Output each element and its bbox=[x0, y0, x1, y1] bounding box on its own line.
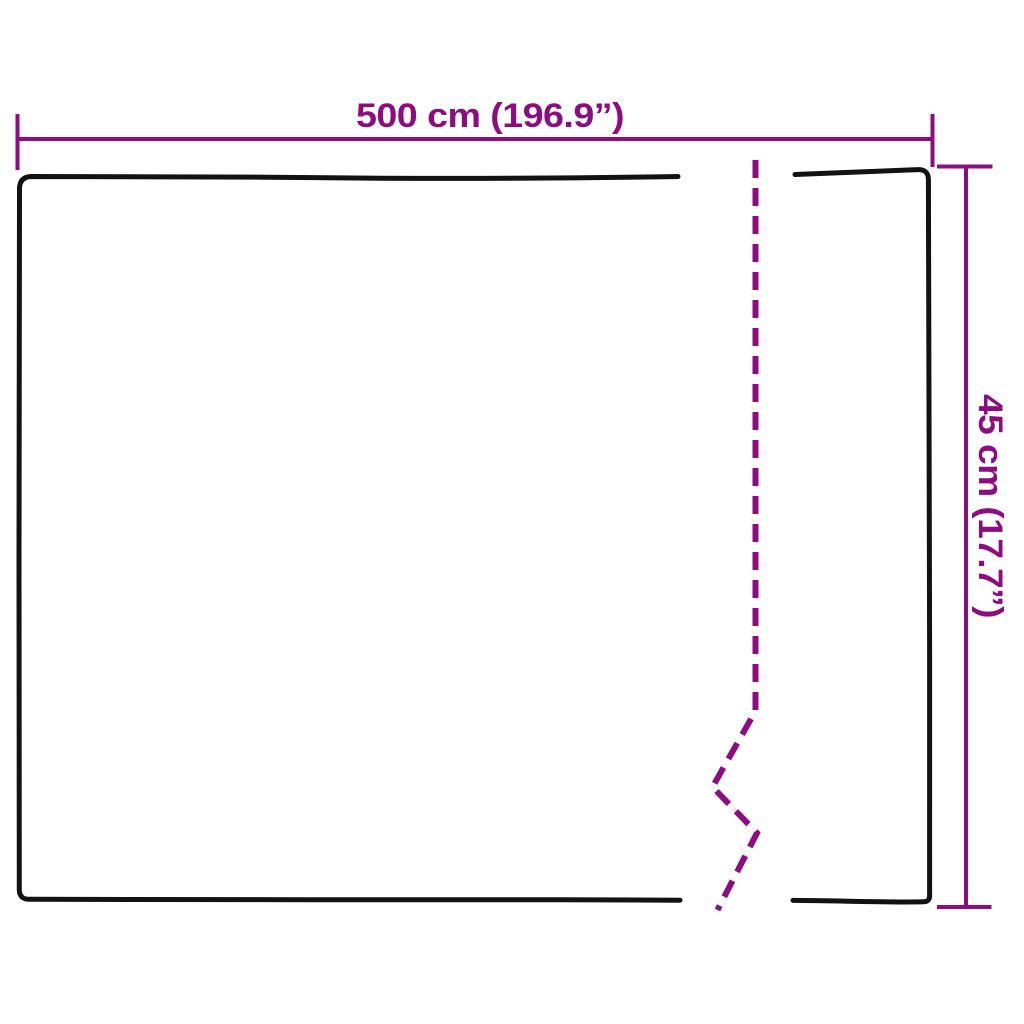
height-dimension: 45 cm (17.7”) bbox=[937, 167, 1009, 908]
dimension-diagram-svg: 500 cm (196.9”) 45 cm (17.7”) bbox=[0, 0, 1024, 1024]
width-dimension: 500 cm (196.9”) bbox=[18, 97, 933, 170]
sheet-outline-right bbox=[793, 170, 930, 902]
sheet-outline-left bbox=[19, 176, 680, 900]
fold-dashed-line bbox=[713, 160, 758, 910]
product-dimension-diagram: 500 cm (196.9”) 45 cm (17.7”) bbox=[0, 0, 1024, 1024]
height-dimension-label: 45 cm (17.7”) bbox=[971, 394, 1009, 618]
width-dimension-label: 500 cm (196.9”) bbox=[356, 97, 624, 135]
